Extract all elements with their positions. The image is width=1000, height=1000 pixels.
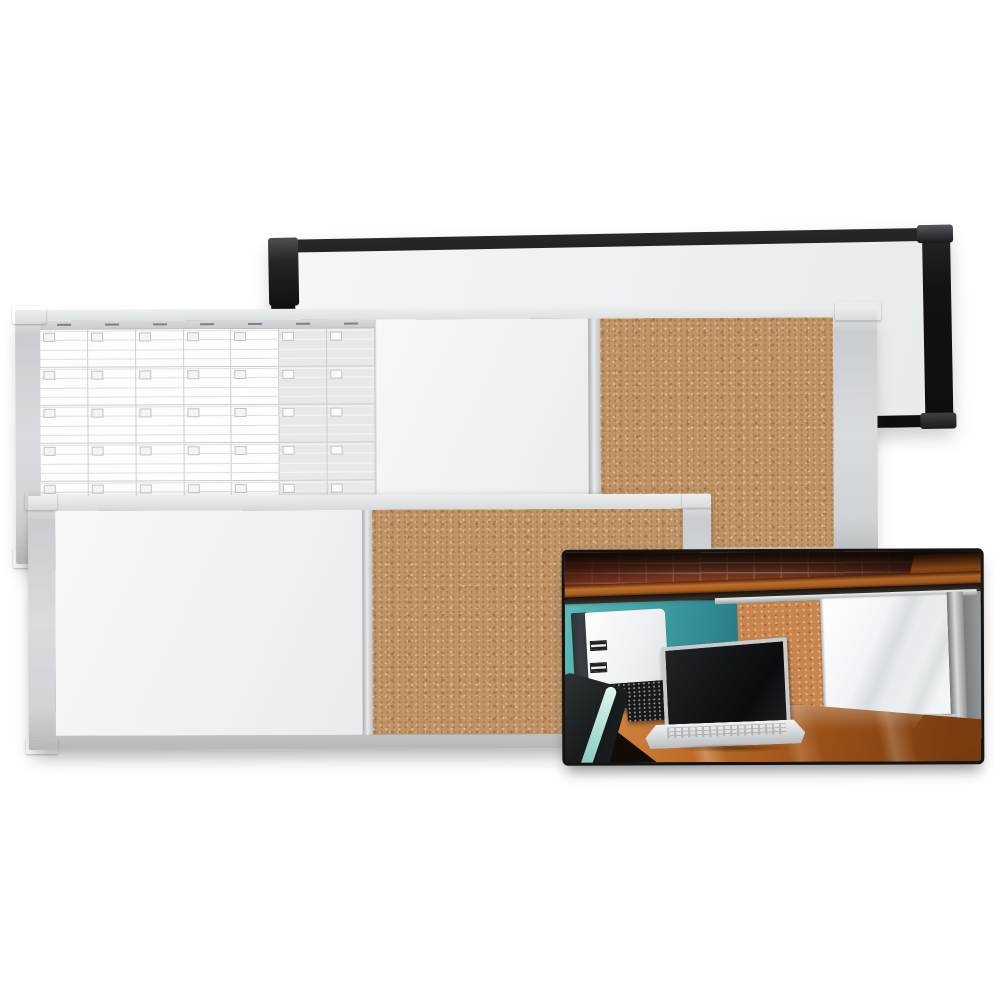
date-box xyxy=(44,447,56,456)
date-box xyxy=(43,333,55,342)
date-box xyxy=(92,485,104,494)
day-label-mark xyxy=(105,324,119,326)
calendar-cell xyxy=(88,405,136,443)
date-box xyxy=(283,484,295,493)
date-box xyxy=(331,484,343,493)
calendar-cell xyxy=(280,443,328,481)
calendar-cell xyxy=(88,329,136,367)
calendar-cell xyxy=(40,406,88,444)
calendar-cell xyxy=(184,367,232,405)
date-box xyxy=(235,408,247,417)
day-label-mark xyxy=(201,323,215,325)
date-box xyxy=(282,332,294,341)
date-box xyxy=(330,332,342,341)
combo-corner-cap-top-right xyxy=(682,490,714,508)
calendar-cell xyxy=(136,405,184,443)
combo-dry-erase-section xyxy=(55,510,363,736)
date-box xyxy=(187,332,199,341)
date-box xyxy=(187,408,199,417)
calendar-cell xyxy=(136,443,184,481)
calendar-cell xyxy=(136,329,184,367)
date-box xyxy=(139,332,151,341)
calendar-cell xyxy=(40,330,88,368)
date-box xyxy=(235,484,247,493)
calendar-grid xyxy=(40,328,376,519)
date-box xyxy=(187,446,199,455)
office-inset-photo-content xyxy=(565,551,982,762)
date-box xyxy=(43,371,55,380)
date-box xyxy=(331,446,343,455)
combo-corner-cap-top-left xyxy=(25,492,57,510)
binder-label-slot xyxy=(590,640,608,651)
date-box xyxy=(43,409,55,418)
date-box xyxy=(139,370,151,379)
calendar-cell xyxy=(328,442,376,480)
calendar-cell xyxy=(327,366,375,404)
date-box xyxy=(91,447,103,456)
date-box xyxy=(139,408,151,417)
day-label-mark xyxy=(248,323,262,325)
calendar-cell xyxy=(232,329,280,367)
date-box xyxy=(283,446,295,455)
calendar-cell xyxy=(184,405,232,443)
day-label-mark xyxy=(57,324,71,326)
calendar-cell xyxy=(279,329,327,367)
planner-corner-cap-top-left xyxy=(12,306,46,324)
mounted-board-end-post xyxy=(947,592,968,722)
calendar-cell xyxy=(232,405,280,443)
office-inset-photo xyxy=(562,548,985,765)
date-box xyxy=(139,446,151,455)
calendar-cell xyxy=(40,368,88,406)
calendar-cell xyxy=(232,443,280,481)
black-board-corner-top-right xyxy=(917,224,953,243)
laptop-keyboard xyxy=(667,723,786,739)
date-box xyxy=(235,370,247,379)
date-box xyxy=(283,408,295,417)
date-box xyxy=(235,446,247,455)
date-box xyxy=(330,370,342,379)
calendar-cell xyxy=(184,443,232,481)
date-box xyxy=(283,370,295,379)
date-box xyxy=(187,484,199,493)
calendar-cell xyxy=(232,367,280,405)
day-label-mark xyxy=(296,323,310,325)
calendar-cell xyxy=(136,367,184,405)
laptop-shadow xyxy=(649,742,817,755)
black-board-corner-bottom-right xyxy=(920,412,956,429)
calendar-cell xyxy=(280,367,328,405)
calendar-cell xyxy=(88,367,136,405)
date-box xyxy=(91,371,103,380)
date-box xyxy=(235,332,247,341)
product-photo-stage xyxy=(0,0,1000,1000)
calendar-cell xyxy=(41,444,89,482)
date-box xyxy=(187,370,199,379)
calendar-cell xyxy=(327,328,375,366)
calendar-cell xyxy=(184,329,232,367)
mounted-board-glare xyxy=(820,594,951,718)
binder-label-slot xyxy=(590,662,608,673)
day-label-mark xyxy=(153,323,167,325)
calendar-cell xyxy=(328,404,376,442)
calendar-cell xyxy=(88,443,136,481)
date-box xyxy=(139,484,151,493)
combo-corner-cap-bottom-left xyxy=(26,738,58,754)
date-box xyxy=(91,333,103,342)
black-board-corner-top-left xyxy=(268,237,299,306)
date-box xyxy=(331,408,343,417)
date-box xyxy=(91,409,103,418)
calendar-cell xyxy=(280,405,328,443)
day-label-mark xyxy=(344,323,358,325)
planner-corner-cap-top-right xyxy=(835,301,881,320)
